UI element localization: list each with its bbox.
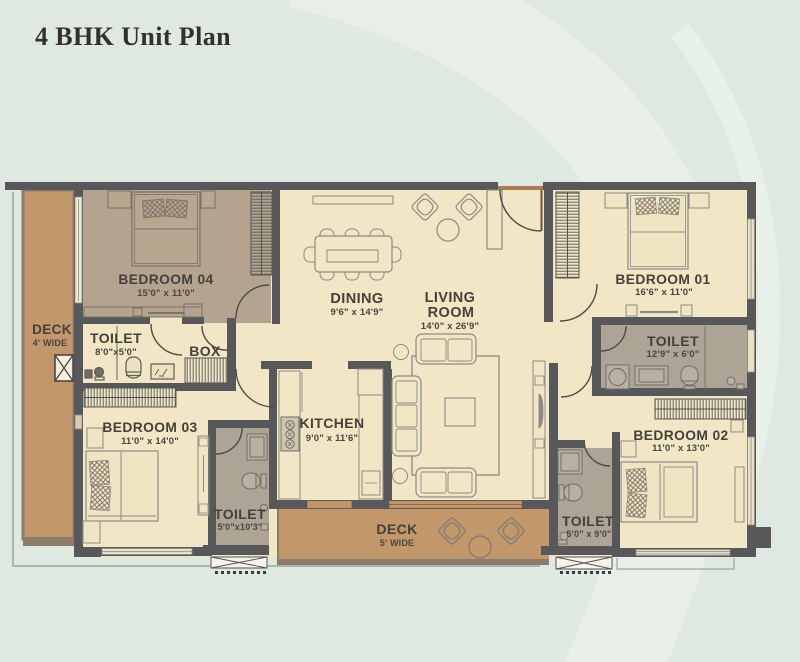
svg-text:9'0" x 11'6": 9'0" x 11'6" [306, 433, 358, 444]
svg-text:ROOM: ROOM [428, 305, 475, 321]
svg-text:DECK: DECK [376, 521, 417, 537]
svg-text:BEDROOM 04: BEDROOM 04 [118, 272, 213, 287]
svg-text:TOILET: TOILET [90, 330, 142, 346]
svg-text:4' WIDE: 4' WIDE [33, 338, 68, 348]
svg-text:12'9" x 6'0": 12'9" x 6'0" [647, 349, 700, 360]
svg-text:TOILET: TOILET [562, 513, 614, 529]
svg-text:5'0"x10'3": 5'0"x10'3" [218, 522, 263, 532]
svg-text:11'0" x 14'0": 11'0" x 14'0" [121, 436, 179, 447]
svg-text:8'0"x5'0": 8'0"x5'0" [95, 347, 137, 358]
svg-text:BOX: BOX [189, 343, 221, 359]
svg-text:9'6" x 14'9": 9'6" x 14'9" [331, 307, 384, 318]
svg-text:TOILET: TOILET [647, 333, 699, 349]
svg-text:5' WIDE: 5' WIDE [380, 538, 415, 548]
svg-text:BEDROOM 03: BEDROOM 03 [102, 420, 197, 435]
svg-text:14'0" x 26'9": 14'0" x 26'9" [421, 321, 479, 332]
svg-text:BEDROOM 01: BEDROOM 01 [615, 272, 710, 287]
svg-text:DECK: DECK [32, 322, 72, 337]
svg-text:5'0" x 9'0": 5'0" x 9'0" [566, 529, 611, 539]
svg-text:15'0" x 11'0": 15'0" x 11'0" [137, 288, 195, 299]
svg-text:DINING: DINING [330, 291, 383, 307]
svg-text:KITCHEN: KITCHEN [299, 415, 364, 431]
svg-text:BEDROOM 02: BEDROOM 02 [633, 428, 728, 443]
svg-text:LIVING: LIVING [425, 290, 476, 306]
svg-text:11'0" x 13'0": 11'0" x 13'0" [652, 443, 710, 454]
svg-text:16'6" x 11'0": 16'6" x 11'0" [635, 287, 693, 298]
svg-text:TOILET: TOILET [214, 506, 266, 522]
svg-text:4 BHK Unit Plan: 4 BHK Unit Plan [35, 22, 231, 51]
